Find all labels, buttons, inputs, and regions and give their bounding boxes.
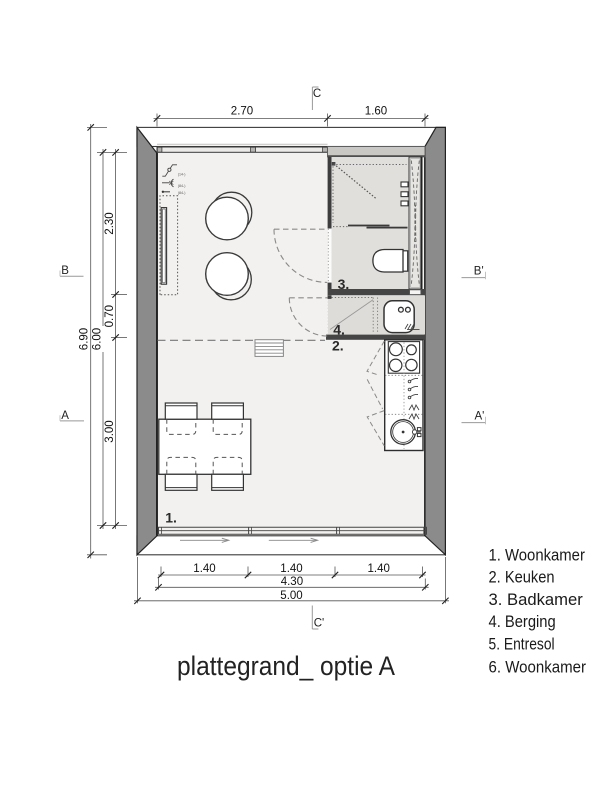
svg-text:5. Entresol: 5. Entresol <box>489 636 555 654</box>
svg-text:3.: 3. <box>338 276 350 292</box>
svg-text:6. Woonkamer: 6. Woonkamer <box>489 658 587 676</box>
svg-text:4.30: 4.30 <box>281 576 303 588</box>
svg-text:5.00: 5.00 <box>280 590 302 602</box>
svg-text:A': A' <box>475 411 485 423</box>
svg-text:(14-): (14-) <box>178 173 186 177</box>
svg-text:C': C' <box>314 618 325 630</box>
svg-text:2.70: 2.70 <box>231 106 253 118</box>
svg-text:A: A <box>61 410 69 422</box>
svg-text:6.00: 6.00 <box>91 328 103 350</box>
svg-text:4.: 4. <box>333 322 345 338</box>
svg-text:B: B <box>61 265 69 277</box>
svg-text:4. Berging: 4. Berging <box>489 613 556 631</box>
svg-text:6.90: 6.90 <box>79 328 91 350</box>
svg-text:2.: 2. <box>332 338 344 354</box>
svg-text:2.30: 2.30 <box>104 212 116 234</box>
svg-text:1. Woonkamer: 1. Woonkamer <box>489 547 586 565</box>
svg-text:1.40: 1.40 <box>368 563 390 575</box>
svg-text:2. Keuken: 2. Keuken <box>489 569 555 587</box>
svg-text:(84-): (84-) <box>178 184 186 188</box>
svg-text:1.40: 1.40 <box>193 563 215 575</box>
svg-text:3. Badkamer: 3. Badkamer <box>489 591 584 609</box>
svg-text:C: C <box>313 88 321 100</box>
svg-text:B': B' <box>474 266 484 278</box>
svg-text:(84-): (84-) <box>178 191 186 195</box>
svg-text:1.40: 1.40 <box>280 563 302 575</box>
svg-text:0.70: 0.70 <box>104 305 116 327</box>
svg-text:1.60: 1.60 <box>365 106 387 118</box>
svg-text:1.: 1. <box>165 509 177 525</box>
svg-text:plattegrand_ optie A: plattegrand_ optie A <box>177 651 395 681</box>
svg-text:3.00: 3.00 <box>104 420 116 442</box>
